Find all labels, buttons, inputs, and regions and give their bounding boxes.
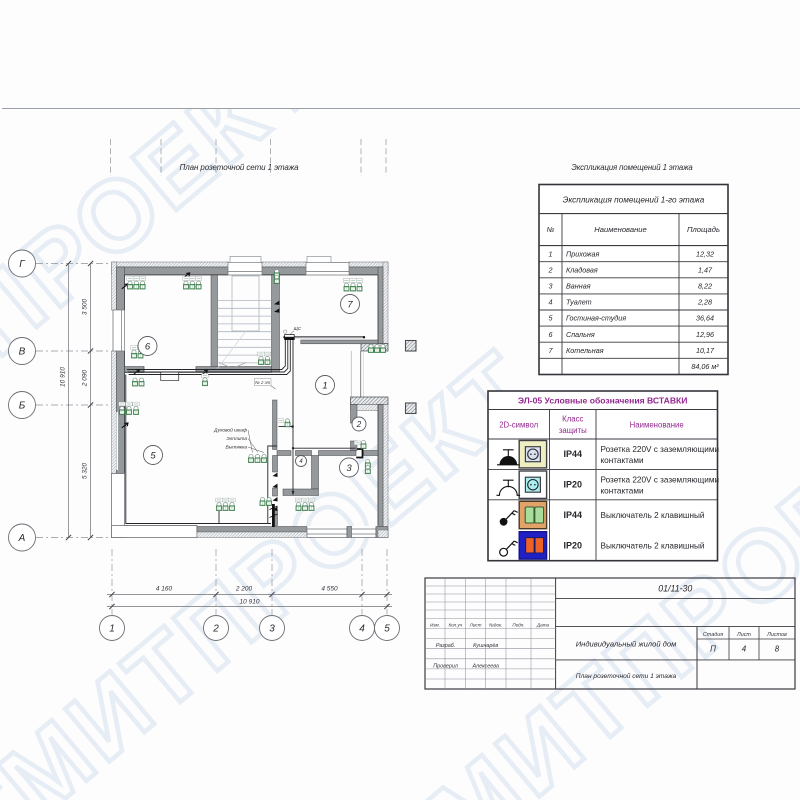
svg-text:4: 4 (742, 645, 747, 654)
svg-text:Розетка 220V с заземляющими: Розетка 220V с заземляющими (601, 475, 720, 484)
svg-text:5 320: 5 320 (82, 462, 89, 479)
svg-text:3: 3 (269, 624, 275, 635)
svg-text:5: 5 (384, 624, 390, 635)
svg-text:12,96: 12,96 (696, 330, 714, 339)
svg-text:контактами: контактами (601, 456, 644, 465)
svg-text:Площадь: Площадь (687, 225, 720, 234)
svg-text:2 090: 2 090 (82, 369, 89, 387)
svg-text:7: 7 (347, 299, 353, 310)
svg-text:СМИТПРОЕКТ: СМИТПРОЕКТ (0, 15, 341, 572)
svg-text:8: 8 (775, 645, 780, 654)
svg-text:5: 5 (150, 450, 156, 461)
svg-text:1: 1 (109, 624, 115, 635)
svg-text:Листов: Листов (766, 632, 787, 638)
svg-text:Наименование: Наименование (594, 225, 646, 234)
svg-text:Гостиная-студия: Гостиная-студия (566, 314, 626, 323)
svg-text:Индивидуальный жилой дом: Индивидуальный жилой дом (576, 640, 677, 649)
svg-text:2D-символ: 2D-символ (499, 421, 538, 430)
svg-text:В: В (19, 347, 26, 358)
svg-text:1: 1 (322, 380, 327, 391)
svg-text:№док.: №док. (489, 622, 503, 627)
svg-text:Экспликация помещений 1 этажа: Экспликация помещений 1 этажа (571, 163, 693, 172)
svg-text:4 160: 4 160 (156, 586, 173, 593)
svg-text:2: 2 (356, 420, 362, 429)
svg-text:ЭЛ-05 Условные обозначения ВСТ: ЭЛ-05 Условные обозначения ВСТАВКИ (518, 396, 688, 406)
svg-text:2: 2 (212, 624, 219, 635)
svg-text:1: 1 (549, 249, 553, 258)
svg-text:Вытяжка: Вытяжка (226, 444, 248, 450)
svg-text:8,22: 8,22 (698, 281, 712, 290)
svg-text:IP20: IP20 (564, 480, 583, 490)
svg-text:Ванная: Ванная (566, 281, 591, 290)
svg-text:Выключатель 2 клавишный: Выключатель 2 клавишный (601, 511, 705, 520)
svg-text:контактами: контактами (601, 486, 644, 495)
svg-text:3: 3 (346, 463, 352, 474)
svg-text:3 500: 3 500 (82, 298, 89, 315)
svg-text:4 550: 4 550 (321, 586, 338, 593)
svg-text:Изм.: Изм. (430, 622, 440, 627)
svg-text:П: П (710, 645, 716, 654)
svg-text:План розеточной сети 1 этажа: План розеточной сети 1 этажа (576, 672, 677, 680)
svg-text:А: А (18, 533, 26, 544)
svg-text:Класс: Класс (562, 415, 583, 424)
svg-text:№: № (547, 225, 555, 234)
svg-text:Лист: Лист (469, 622, 482, 627)
svg-text:Алексеева: Алексеева (471, 663, 499, 669)
svg-text:4: 4 (359, 624, 365, 635)
svg-text:12,32: 12,32 (696, 249, 714, 258)
svg-text:Кушнарёв: Кушнарёв (473, 643, 498, 649)
svg-text:Котельная: Котельная (566, 346, 604, 355)
svg-text:IP20: IP20 (564, 540, 583, 550)
svg-text:10 910: 10 910 (240, 599, 260, 606)
svg-text:10,17: 10,17 (696, 346, 715, 355)
svg-text:Наименование: Наименование (630, 421, 684, 430)
svg-text:Подп.: Подп. (512, 622, 524, 627)
svg-text:Спальня: Спальня (566, 330, 595, 339)
svg-text:Розетка 220V с заземляющими: Розетка 220V с заземляющими (601, 445, 720, 454)
svg-text:01/11-30: 01/11-30 (658, 583, 692, 593)
svg-text:4: 4 (549, 298, 553, 307)
svg-text:защиты: защиты (559, 426, 587, 435)
svg-text:10 910: 10 910 (60, 367, 67, 387)
svg-text:2,28: 2,28 (697, 298, 712, 307)
svg-text:Дата: Дата (536, 622, 550, 627)
svg-text:Стадия: Стадия (703, 632, 723, 638)
svg-text:6: 6 (145, 341, 151, 352)
svg-text:36,64: 36,64 (696, 314, 714, 323)
svg-text:Прихожая: Прихожая (566, 249, 599, 258)
svg-text:Туалет: Туалет (566, 298, 592, 307)
svg-text:2 200: 2 200 (235, 586, 253, 593)
svg-text:3: 3 (549, 281, 553, 290)
svg-text:Лист: Лист (736, 632, 751, 638)
svg-text:IP44: IP44 (564, 510, 583, 520)
svg-text:СМИТПРОЕКТ: СМИТПРОЕКТ (0, 330, 556, 800)
svg-text:Б: Б (19, 401, 26, 412)
svg-text:IP44: IP44 (564, 449, 583, 459)
svg-text:Элплита: Элплита (226, 436, 247, 442)
svg-text:Кладовая: Кладовая (566, 265, 598, 274)
svg-text:Экспликация помещений 1-го эта: Экспликация помещений 1-го этажа (563, 196, 705, 205)
svg-text:№ 2 эт: № 2 эт (255, 380, 271, 385)
svg-text:1,47: 1,47 (698, 265, 713, 274)
svg-text:Кол.уч: Кол.уч (448, 622, 462, 627)
svg-text:Разраб.: Разраб. (436, 643, 456, 649)
svg-text:ЩС: ЩС (294, 326, 302, 331)
svg-text:2: 2 (548, 265, 553, 274)
svg-text:Выключатель 2 клавишный: Выключатель 2 клавишный (601, 541, 705, 550)
svg-text:Духовой шкаф: Духовой шкаф (213, 427, 247, 434)
svg-text:84,06 м²: 84,06 м² (691, 362, 719, 371)
svg-text:6: 6 (549, 330, 553, 339)
svg-text:Проверил: Проверил (433, 663, 458, 669)
svg-text:План розеточной сети 1 этажа: План розеточной сети 1 этажа (180, 163, 300, 172)
